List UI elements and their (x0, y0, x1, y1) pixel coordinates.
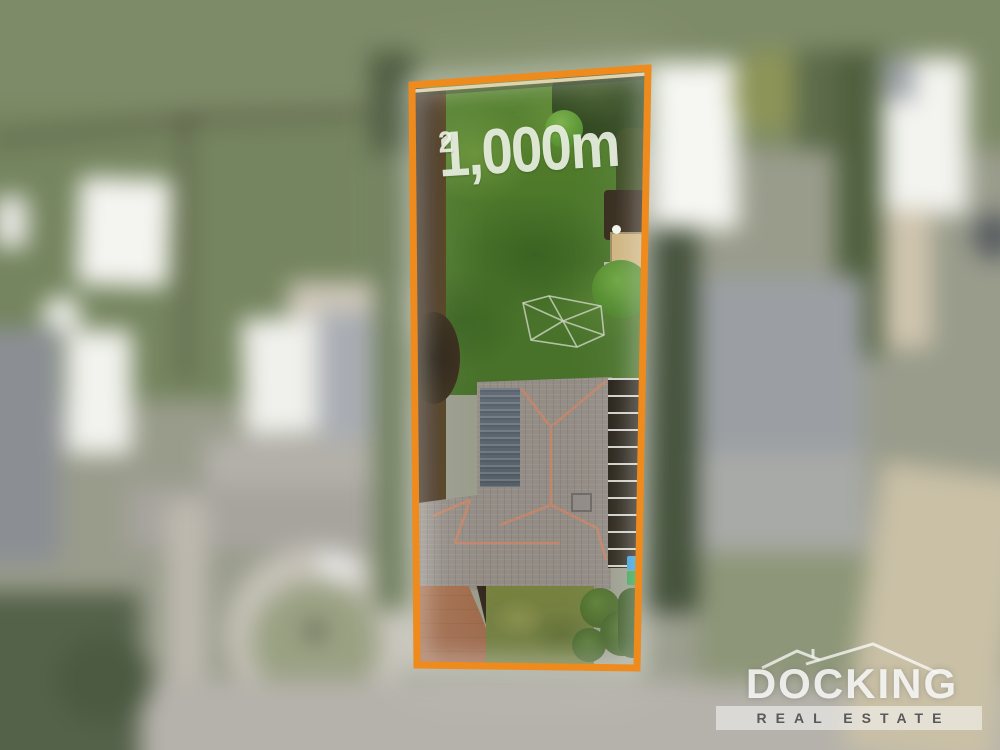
watermark-tagline-band: REAL ESTATE (716, 706, 982, 730)
watermark-brand: DOCKING (722, 660, 982, 708)
watermark: DOCKING REAL ESTATE (700, 630, 1000, 740)
watermark-tagline: REAL ESTATE (748, 710, 951, 726)
aerial-photo: 1,000m2 DOCKING REAL ESTATE (0, 0, 1000, 750)
